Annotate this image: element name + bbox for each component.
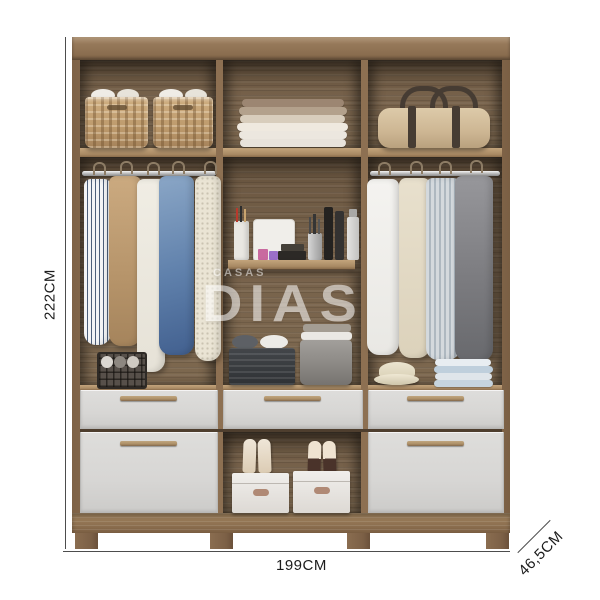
wardrobe-foot xyxy=(486,533,509,549)
hanger-hook xyxy=(120,161,133,174)
dark-gray-shirt xyxy=(455,176,493,361)
brush-cup xyxy=(308,233,322,260)
duffel-bag xyxy=(378,92,490,148)
folded-shirt xyxy=(435,373,492,380)
notebook-stack xyxy=(278,251,306,260)
folded-towel-stack xyxy=(237,99,348,148)
wardrobe xyxy=(72,37,510,549)
folded-towel xyxy=(242,99,344,107)
folded-shirt xyxy=(434,366,493,373)
box-label-handle xyxy=(253,489,269,496)
pen xyxy=(240,206,242,222)
panama-hat xyxy=(374,362,419,385)
depth-dimension-label: 46,5CM xyxy=(510,523,572,585)
middle-shelf-board xyxy=(228,260,355,270)
high-heel-shoe xyxy=(257,439,271,473)
hanger-hook xyxy=(147,162,160,175)
rolled-clothes xyxy=(101,356,113,368)
hanger-hook xyxy=(204,161,217,174)
folded-towel xyxy=(239,107,347,115)
bag-strap xyxy=(452,106,460,148)
wardrobe-top-panel xyxy=(72,37,510,60)
folded-towel xyxy=(301,332,352,340)
wicker-basket xyxy=(85,97,148,148)
shoe-box xyxy=(232,473,289,513)
drawer-top-left xyxy=(80,390,218,429)
folded-towel xyxy=(303,324,351,332)
black-bottle xyxy=(324,207,333,260)
folded-shirt xyxy=(434,380,493,387)
drawer-handle xyxy=(407,441,464,446)
rolled-clothes xyxy=(127,356,139,368)
high-heel-shoe xyxy=(322,441,336,473)
striped-shirt xyxy=(84,179,111,345)
wardrobe-base xyxy=(72,513,510,533)
folded-towel xyxy=(240,139,346,147)
drawer-handle xyxy=(264,396,321,401)
width-dimension-label: 199CM xyxy=(276,557,327,574)
hanger-hook xyxy=(172,161,185,174)
drawer-top-right xyxy=(368,390,504,429)
high-heel-shoe xyxy=(242,439,256,473)
drawer-handle xyxy=(120,441,177,446)
pink-box xyxy=(258,249,268,260)
drawer-handle xyxy=(120,396,177,401)
height-dimension-label: 222CM xyxy=(42,265,59,325)
drawer-handle xyxy=(407,396,464,401)
rolled-towel xyxy=(260,335,288,349)
basket-handle-slot xyxy=(173,105,193,110)
pencil-cup xyxy=(234,221,249,260)
hat-brim xyxy=(374,374,419,385)
box-label-handle xyxy=(314,487,330,494)
wardrobe-foot xyxy=(347,533,370,549)
folded-towel xyxy=(237,123,348,131)
fabric-storage-bin xyxy=(300,340,352,385)
rolled-blanket xyxy=(232,335,258,349)
wire-basket xyxy=(97,352,147,389)
bag-body xyxy=(378,108,490,148)
wicker-basket xyxy=(153,97,213,148)
ribbed-storage-bin xyxy=(229,348,295,385)
hanger-hook xyxy=(470,160,483,173)
box-lid-line xyxy=(232,483,289,484)
basket-handle-slot xyxy=(107,105,127,110)
drawer-deep-left xyxy=(80,432,218,513)
folded-shirt-stack xyxy=(433,359,493,386)
hanger-hook xyxy=(410,161,423,174)
wardrobe-product-image: 222CM 199CM 46,5CM CASAS DIAS xyxy=(0,0,600,600)
pen xyxy=(244,209,246,222)
high-heel-shoe xyxy=(307,441,321,473)
spray-cap xyxy=(349,209,357,217)
hanger-hook xyxy=(439,161,452,174)
folded-towel xyxy=(240,115,345,123)
box-lid-line xyxy=(293,481,350,482)
purple-box xyxy=(269,251,278,260)
height-dimension-line xyxy=(65,37,66,549)
spray-bottle xyxy=(347,217,359,260)
folded-shirt xyxy=(435,359,491,366)
white-dress-shirt xyxy=(367,179,399,355)
makeup-brush xyxy=(318,219,320,234)
makeup-brush xyxy=(309,217,311,234)
bag-strap xyxy=(408,106,416,148)
drawer-deep-right xyxy=(368,432,504,513)
black-bottle xyxy=(335,211,344,260)
notebook-stack xyxy=(281,244,304,251)
wardrobe-foot xyxy=(75,533,98,549)
hanger-hook xyxy=(378,162,391,175)
width-dimension-line xyxy=(63,551,510,552)
shoe-box xyxy=(293,471,350,513)
hanger-hook xyxy=(93,162,106,175)
knit-dress xyxy=(195,176,221,361)
rolled-clothes xyxy=(114,356,126,368)
folded-towel xyxy=(239,131,347,139)
makeup-brush xyxy=(313,214,316,234)
pen xyxy=(236,208,238,222)
denim-jacket xyxy=(159,176,194,355)
wardrobe-foot xyxy=(210,533,233,549)
drawer-top-middle xyxy=(223,390,363,429)
